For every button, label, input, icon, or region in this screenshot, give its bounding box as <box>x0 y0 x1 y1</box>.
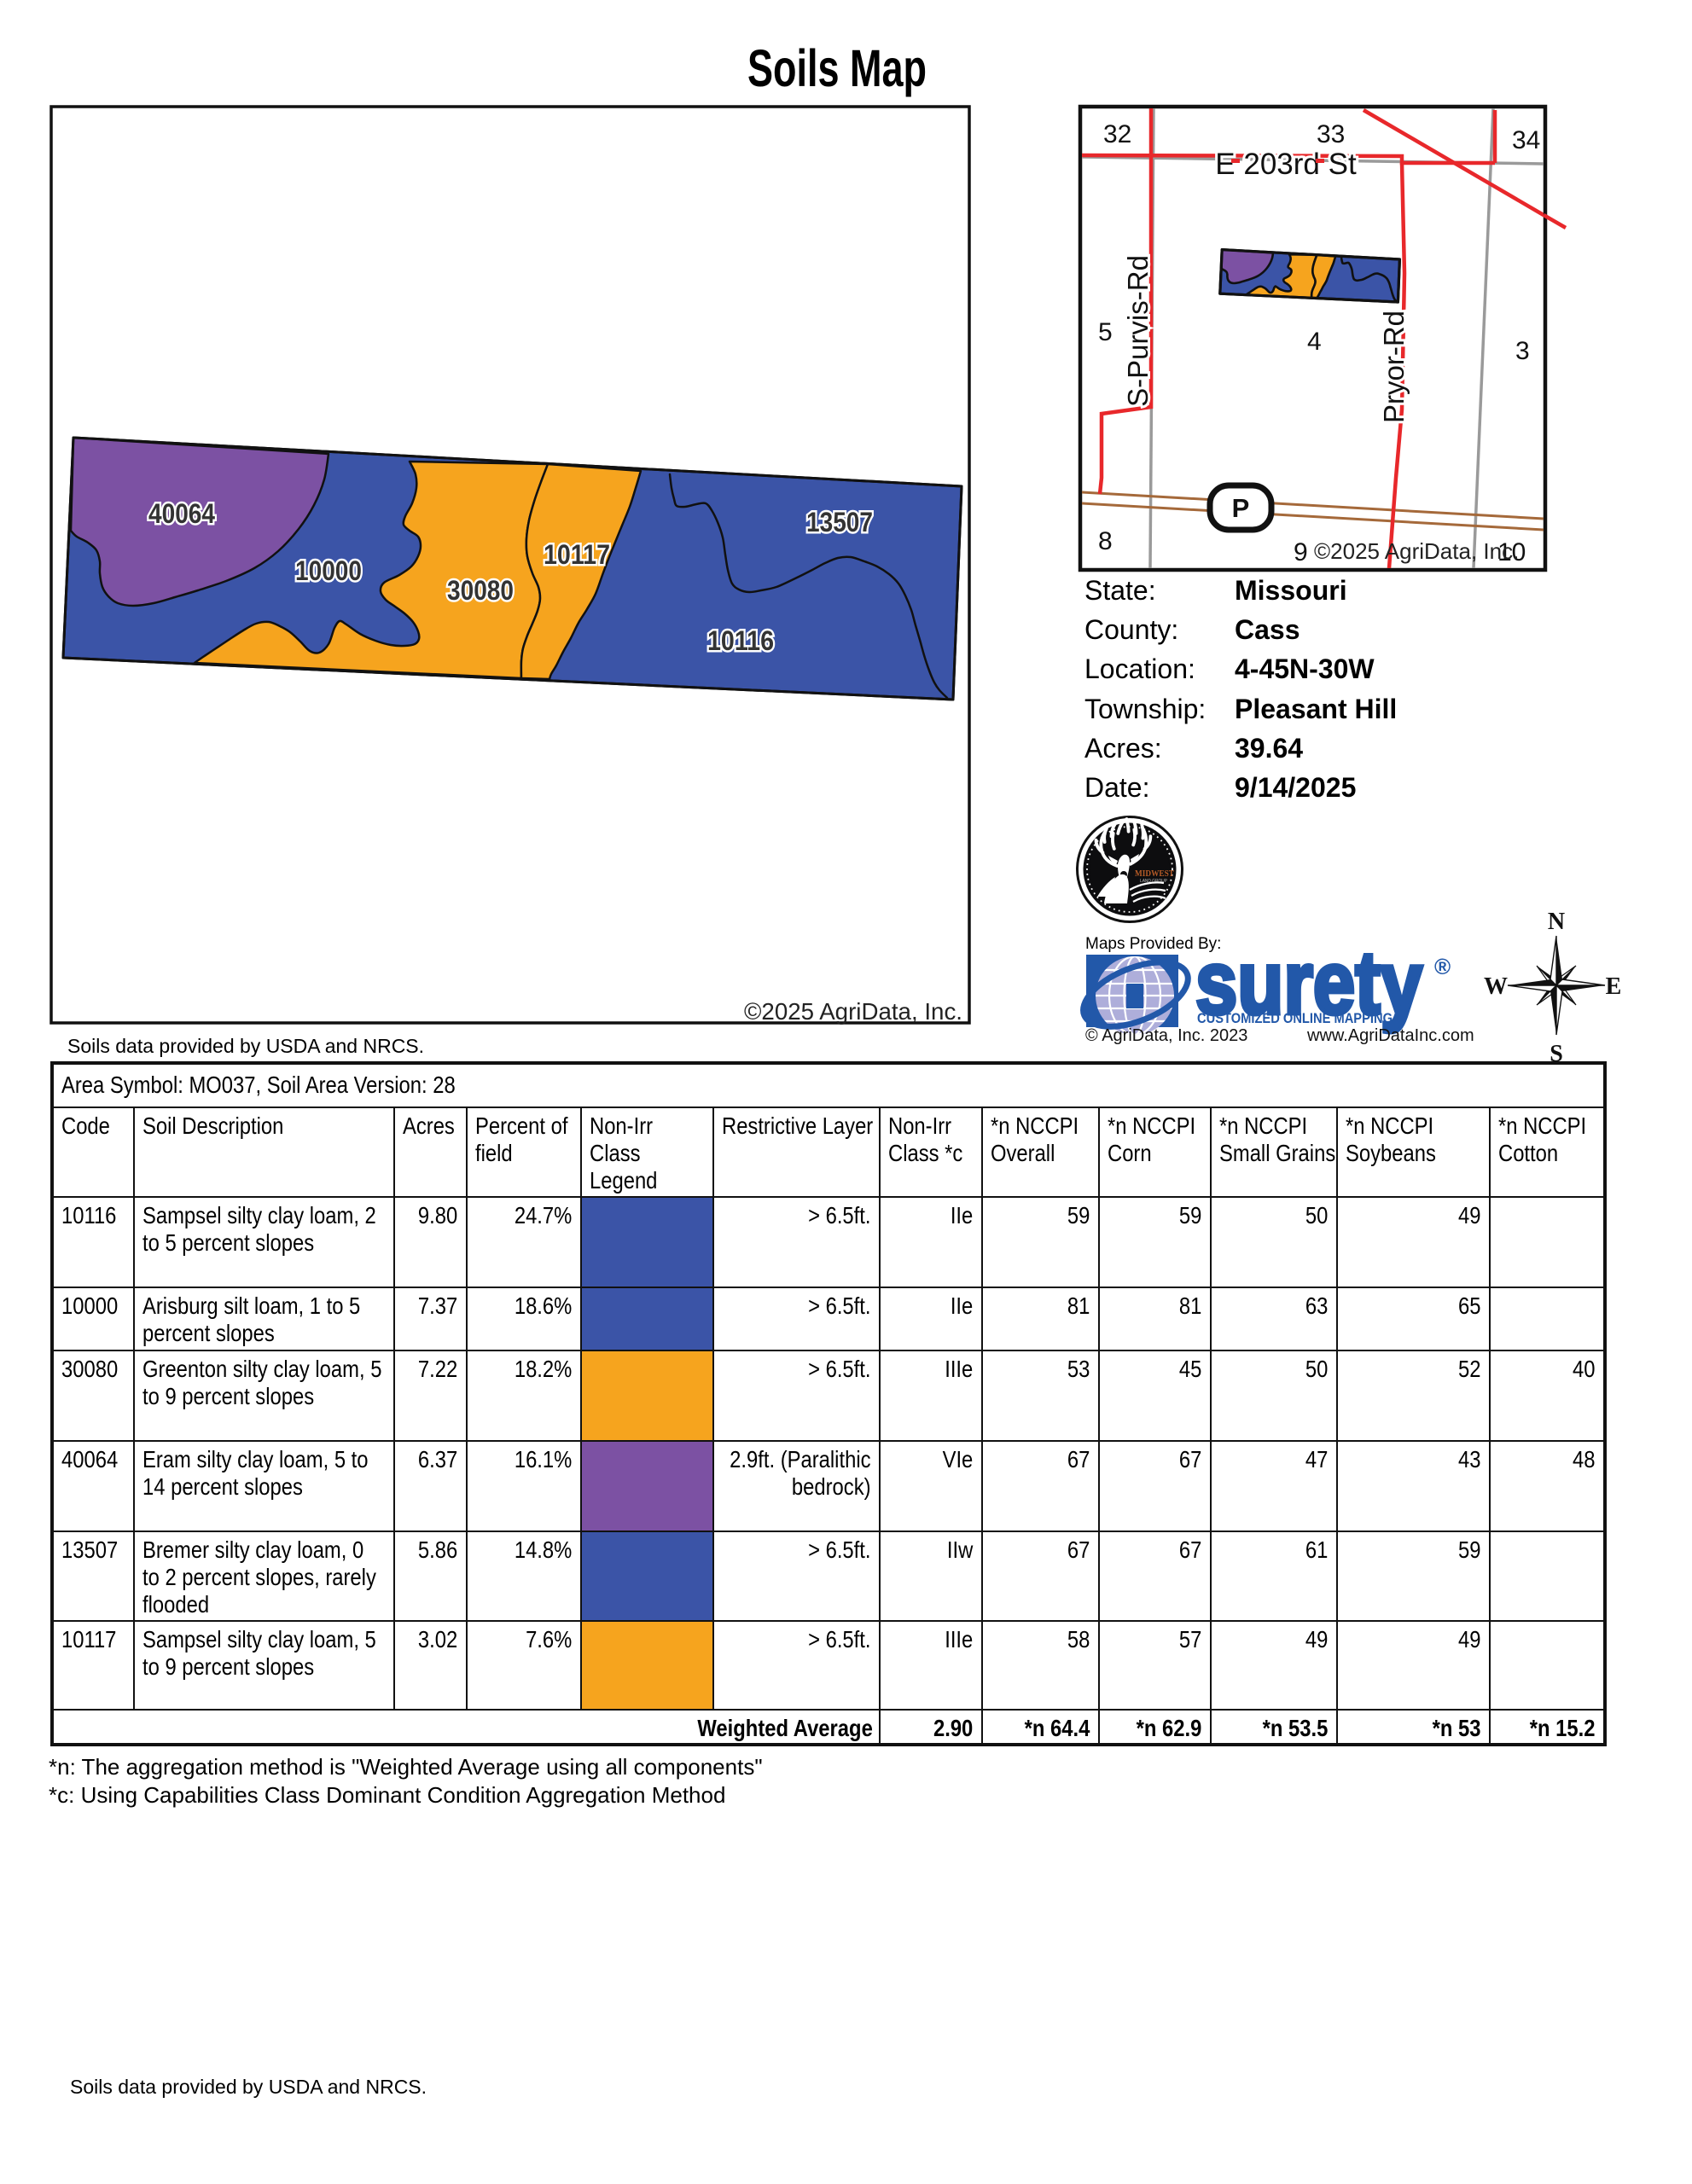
svg-text:®: ® <box>1434 954 1451 979</box>
svg-text:S-Purvis-Rd: S-Purvis-Rd <box>1122 255 1154 407</box>
svg-text:E: E <box>1606 973 1622 1000</box>
svg-text:34: 34 <box>1512 126 1540 154</box>
svg-text:8: 8 <box>1098 527 1113 555</box>
svg-text:P: P <box>1232 493 1250 523</box>
svg-text:N: N <box>1548 910 1565 935</box>
svg-text:W: W <box>1484 973 1508 1000</box>
svg-text:S: S <box>1550 1041 1563 1064</box>
svg-text:32: 32 <box>1103 120 1131 148</box>
svg-text:33: 33 <box>1317 120 1345 148</box>
svg-text:Pryor-Rd: Pryor-Rd <box>1378 311 1410 423</box>
svg-text:4: 4 <box>1307 328 1322 356</box>
svg-text:3: 3 <box>1515 337 1530 365</box>
svg-text:E 203rd St: E 203rd St <box>1215 148 1357 181</box>
svg-text:9: 9 <box>1294 538 1308 566</box>
svg-text:©2025 AgriData, Inc.: ©2025 AgriData, Inc. <box>1314 538 1519 564</box>
svg-text:MIDWEST: MIDWEST <box>1135 868 1175 879</box>
svg-text:CUSTOMIZED ONLINE MAPPING: CUSTOMIZED ONLINE MAPPING <box>1197 1011 1393 1026</box>
svg-text:LAND GROUP: LAND GROUP <box>1140 879 1167 884</box>
svg-text:5: 5 <box>1098 318 1113 346</box>
